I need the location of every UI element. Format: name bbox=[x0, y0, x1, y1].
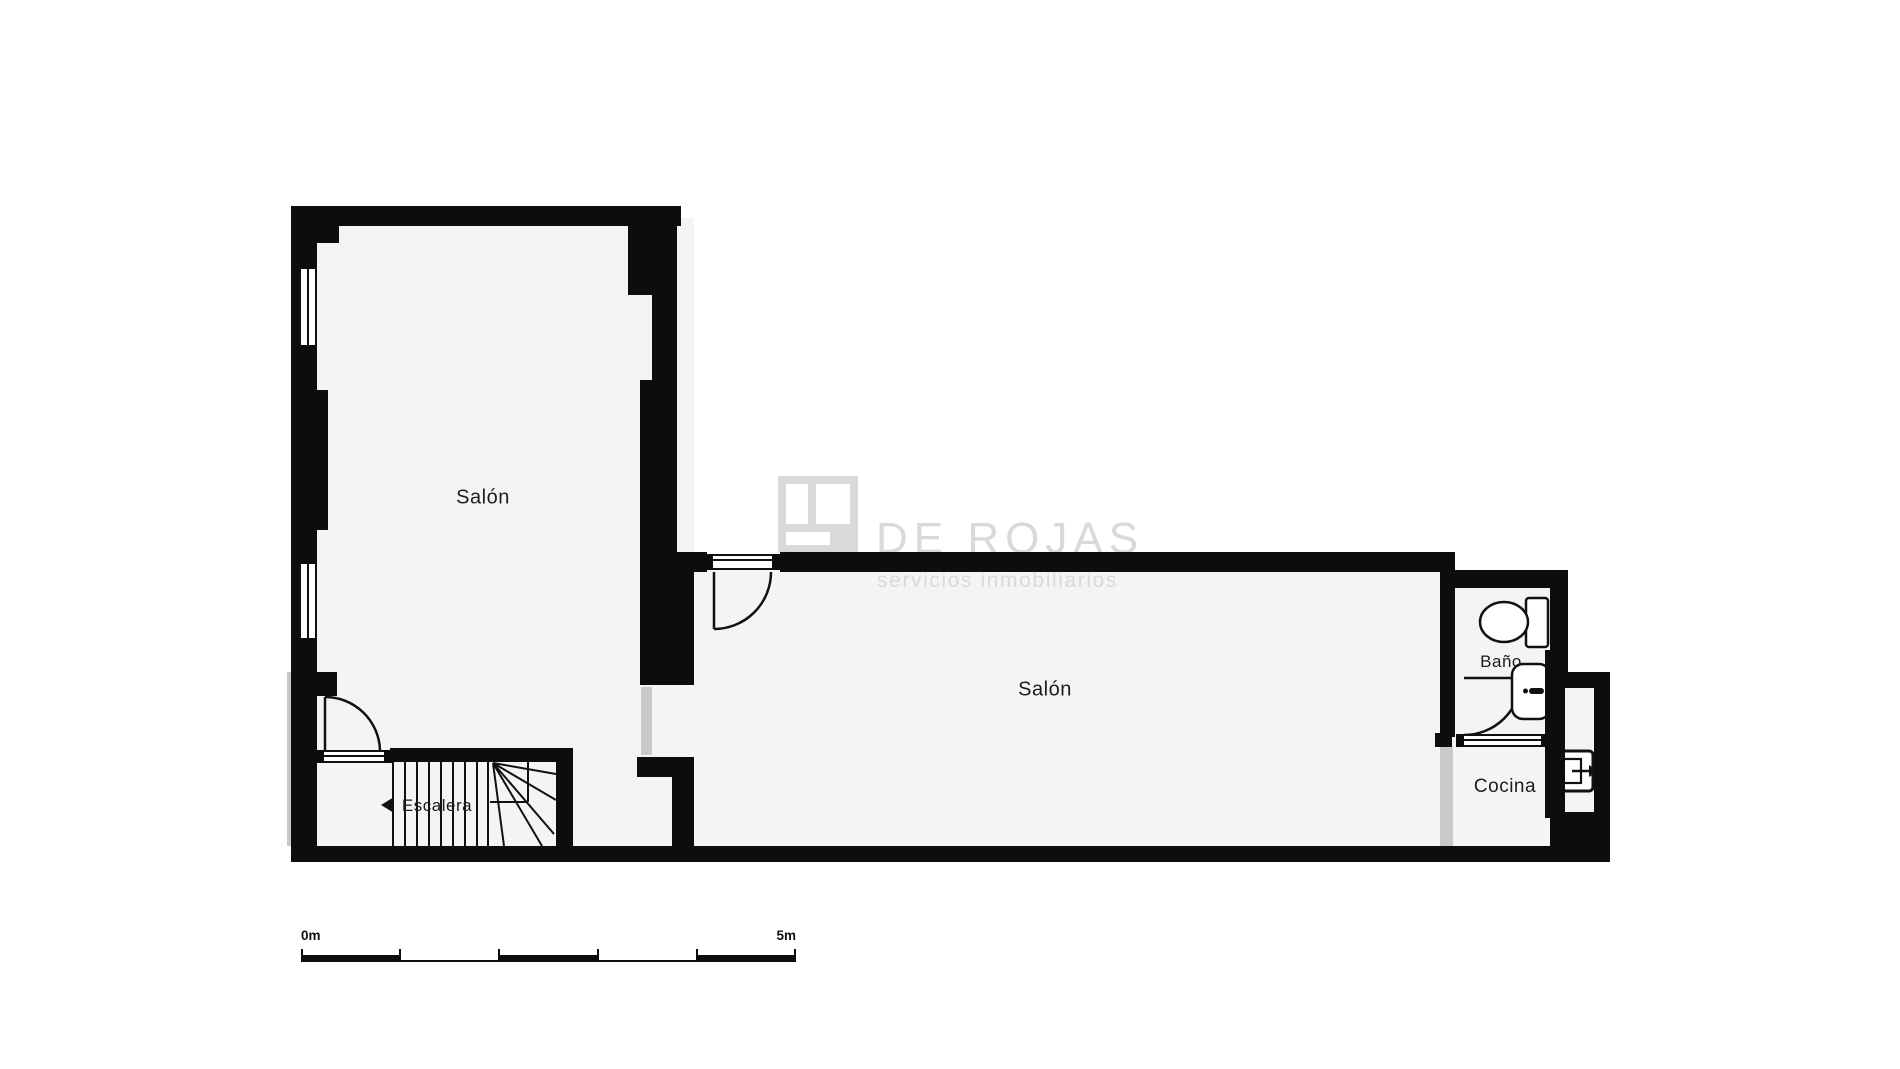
jamb bbox=[705, 554, 713, 570]
wall-bath-jamb bbox=[1435, 733, 1452, 747]
wall-top-salon bbox=[291, 206, 681, 226]
wall-right-salon-foot bbox=[677, 572, 694, 685]
threshold-bathroom bbox=[1456, 734, 1549, 747]
window-cap bbox=[299, 557, 317, 564]
label-salon-top: Salón bbox=[456, 487, 510, 510]
label-stairs: Escalera bbox=[402, 796, 472, 816]
threshold-salon-main-door bbox=[705, 554, 780, 570]
wall-hinge-block bbox=[315, 672, 337, 696]
scale-end-label: 5m bbox=[776, 928, 796, 943]
door-salon-main bbox=[714, 572, 771, 629]
scale-bar: 0m 5m bbox=[301, 928, 796, 964]
wall-right-salon-b bbox=[652, 295, 677, 381]
stairs-direction-arrow-icon bbox=[381, 797, 394, 813]
scale-start-label: 0m bbox=[301, 928, 321, 943]
jamb bbox=[772, 554, 780, 570]
threshold-salon-top-door bbox=[316, 750, 392, 763]
label-bathroom: Baño bbox=[1480, 652, 1522, 672]
wall-salon-main-top-stub bbox=[677, 552, 707, 572]
window-cap bbox=[299, 345, 317, 352]
wall-left-pier bbox=[302, 390, 328, 530]
window-cap bbox=[299, 262, 317, 269]
wall-stairs-top bbox=[390, 748, 573, 762]
scale-bar-line bbox=[301, 948, 796, 962]
jamb bbox=[1541, 734, 1549, 747]
floor-plan: DE ROJAS servicios inmobiliarios bbox=[0, 0, 1900, 1069]
window-left-lower bbox=[299, 557, 317, 645]
wall-right-salon-a bbox=[628, 206, 677, 295]
label-kitchen: Cocina bbox=[1474, 776, 1536, 798]
wall-stairs-right bbox=[556, 748, 573, 862]
window-left-upper bbox=[299, 262, 317, 352]
jamb bbox=[316, 750, 324, 763]
wall-corner-bottomright bbox=[1550, 812, 1610, 862]
window-cap bbox=[299, 638, 317, 645]
wall-right-salon-c bbox=[640, 380, 677, 685]
label-salon-main: Salón bbox=[1018, 679, 1072, 702]
door-salon-top bbox=[325, 697, 380, 750]
wall-salon-main-top bbox=[780, 552, 1455, 572]
toilet-icon bbox=[1480, 598, 1548, 647]
jamb bbox=[1456, 734, 1464, 747]
jamb bbox=[384, 750, 392, 763]
wall-z-horizontal bbox=[637, 757, 694, 777]
wall-bottom bbox=[291, 846, 1610, 862]
